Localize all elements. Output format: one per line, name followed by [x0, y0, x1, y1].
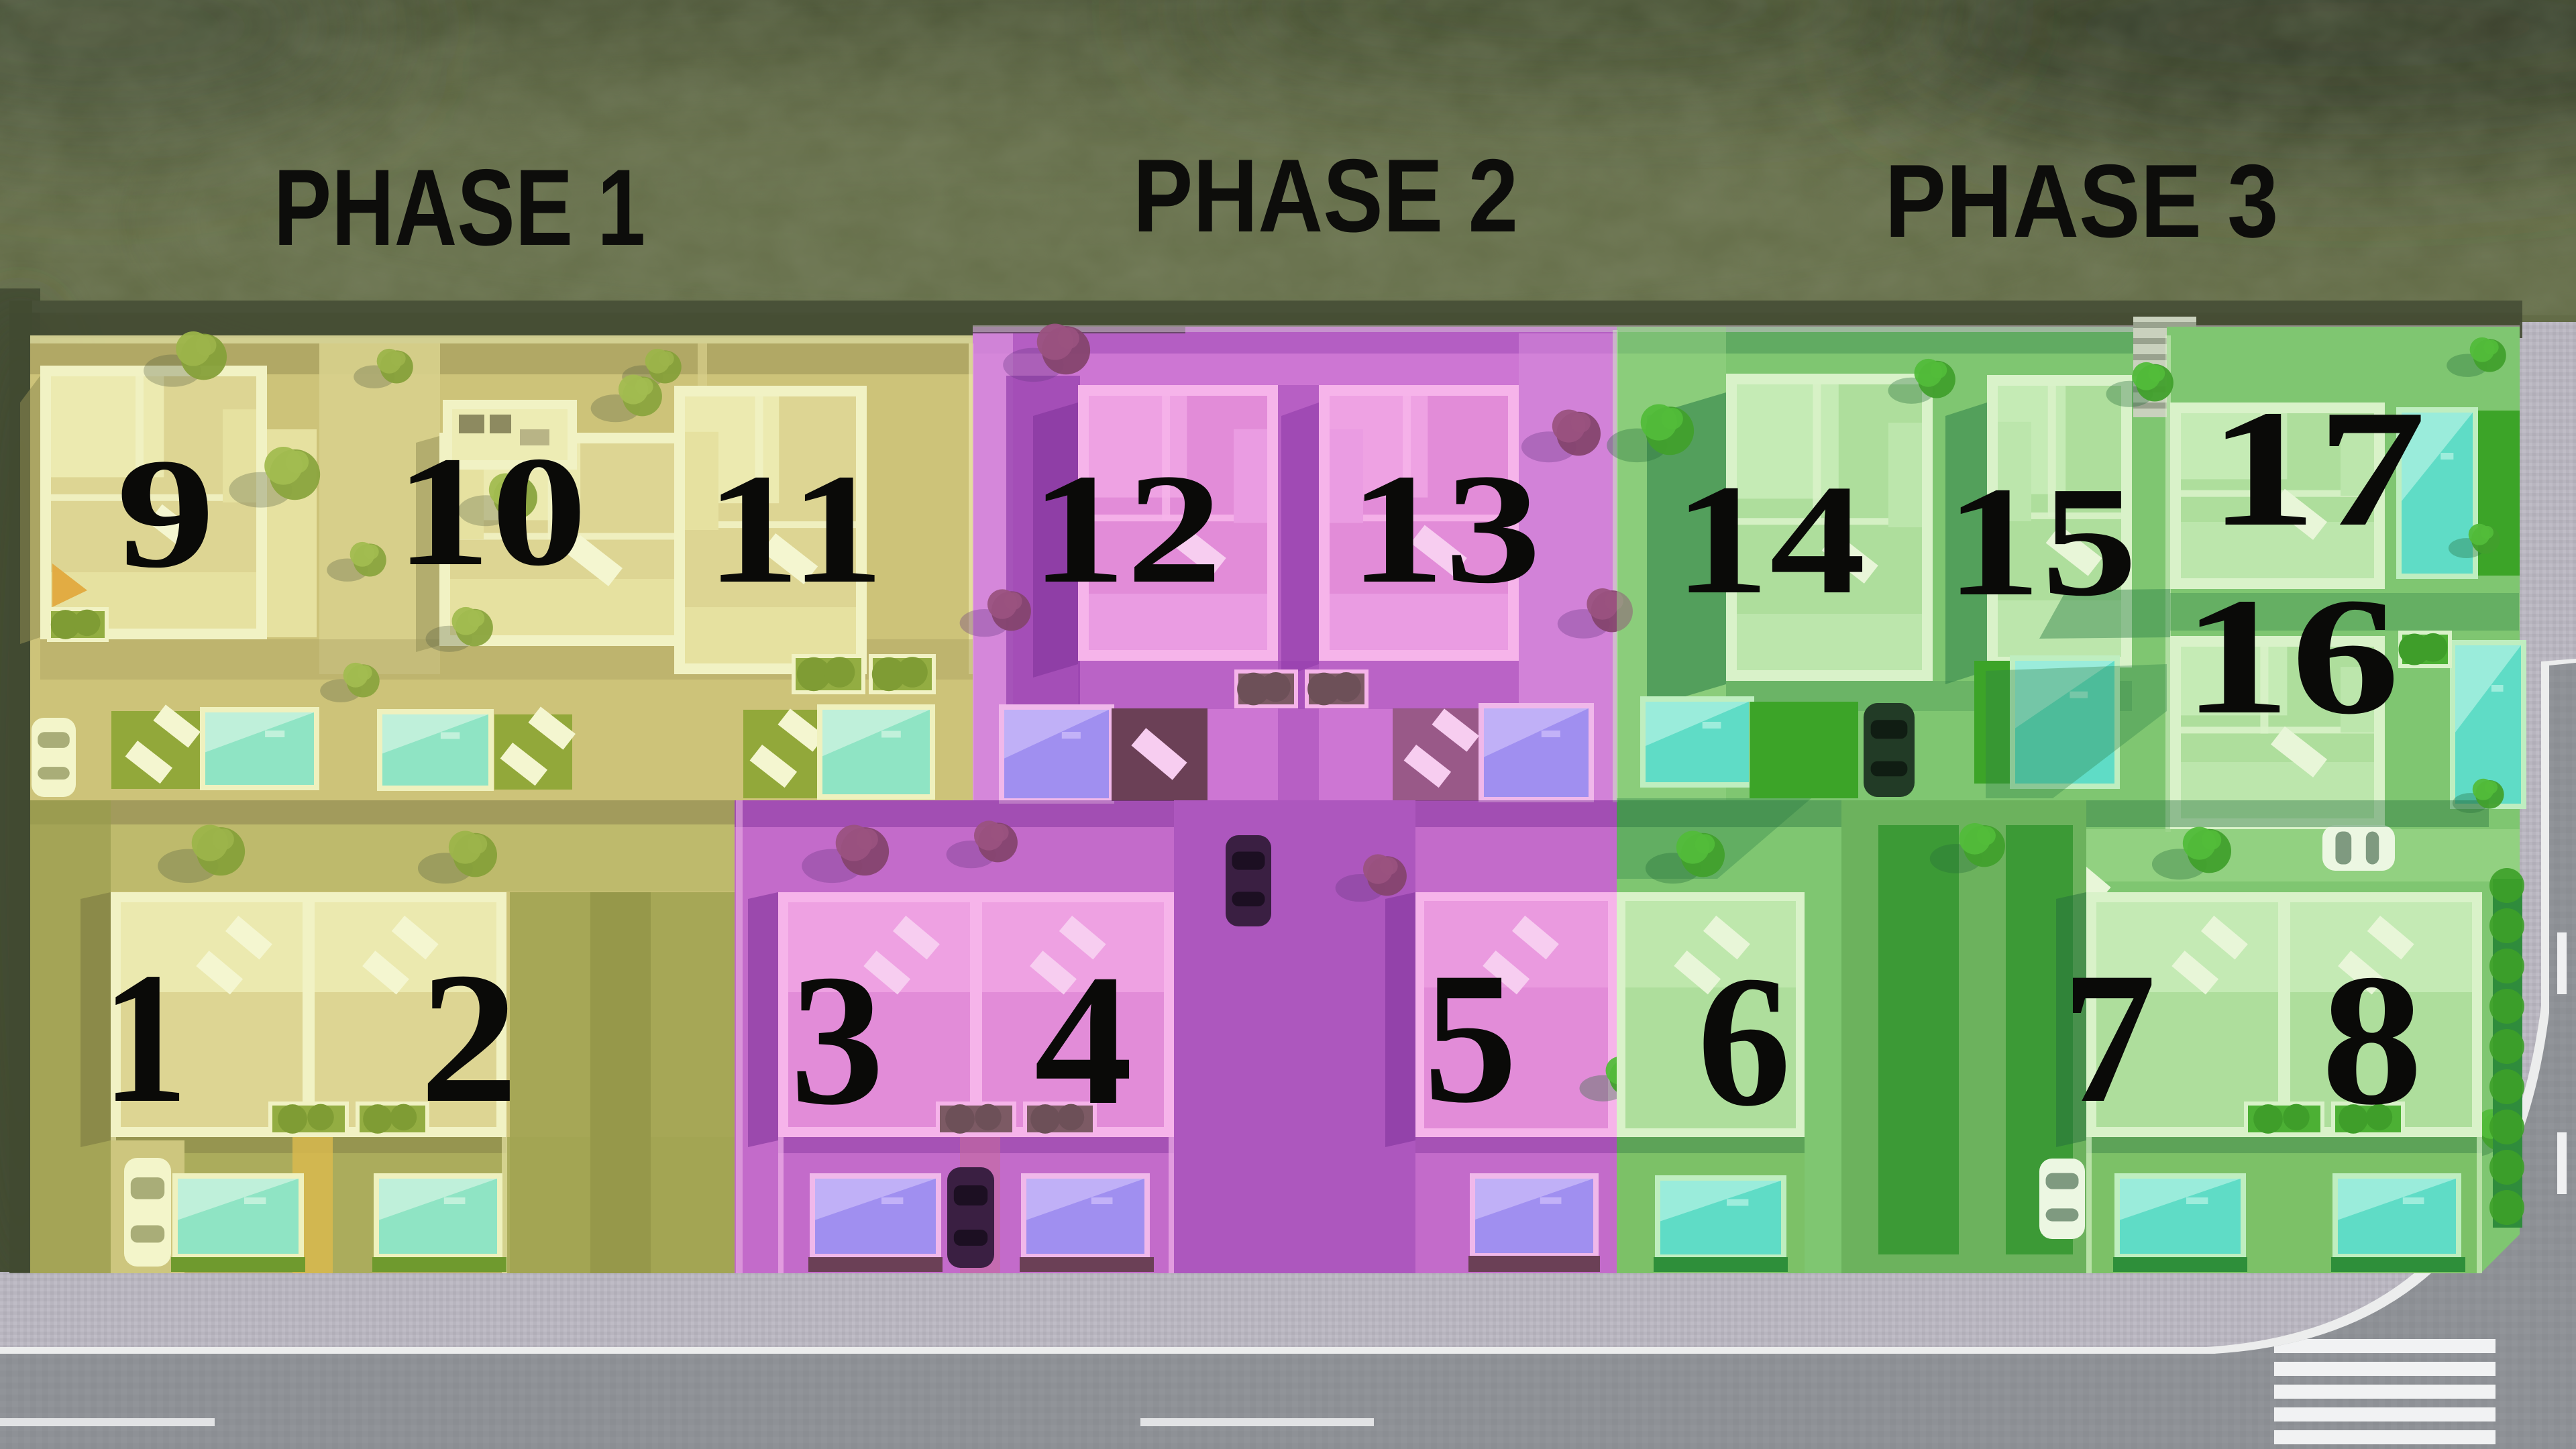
svg-text:9: 9: [117, 426, 215, 601]
svg-text:12: 12: [1030, 441, 1223, 616]
svg-text:6: 6: [1697, 936, 1791, 1145]
svg-text:2: 2: [419, 934, 518, 1142]
svg-text:11: 11: [706, 442, 884, 616]
svg-text:5: 5: [1424, 933, 1517, 1142]
svg-text:3: 3: [790, 935, 884, 1144]
svg-text:1: 1: [102, 934, 189, 1142]
svg-text:7: 7: [2062, 933, 2156, 1142]
svg-text:4: 4: [1034, 936, 1132, 1144]
svg-text:8: 8: [2321, 936, 2422, 1144]
svg-text:17: 17: [2208, 376, 2426, 561]
svg-text:10: 10: [395, 423, 588, 598]
svg-text:PHASE 3: PHASE 3: [1885, 144, 2279, 260]
svg-text:15: 15: [1945, 453, 2138, 629]
svg-text:16: 16: [2182, 563, 2400, 749]
svg-text:PHASE 2: PHASE 2: [1133, 138, 1518, 254]
svg-text:13: 13: [1349, 441, 1542, 616]
svg-text:PHASE 1: PHASE 1: [274, 147, 646, 268]
svg-text:14: 14: [1674, 451, 1866, 627]
